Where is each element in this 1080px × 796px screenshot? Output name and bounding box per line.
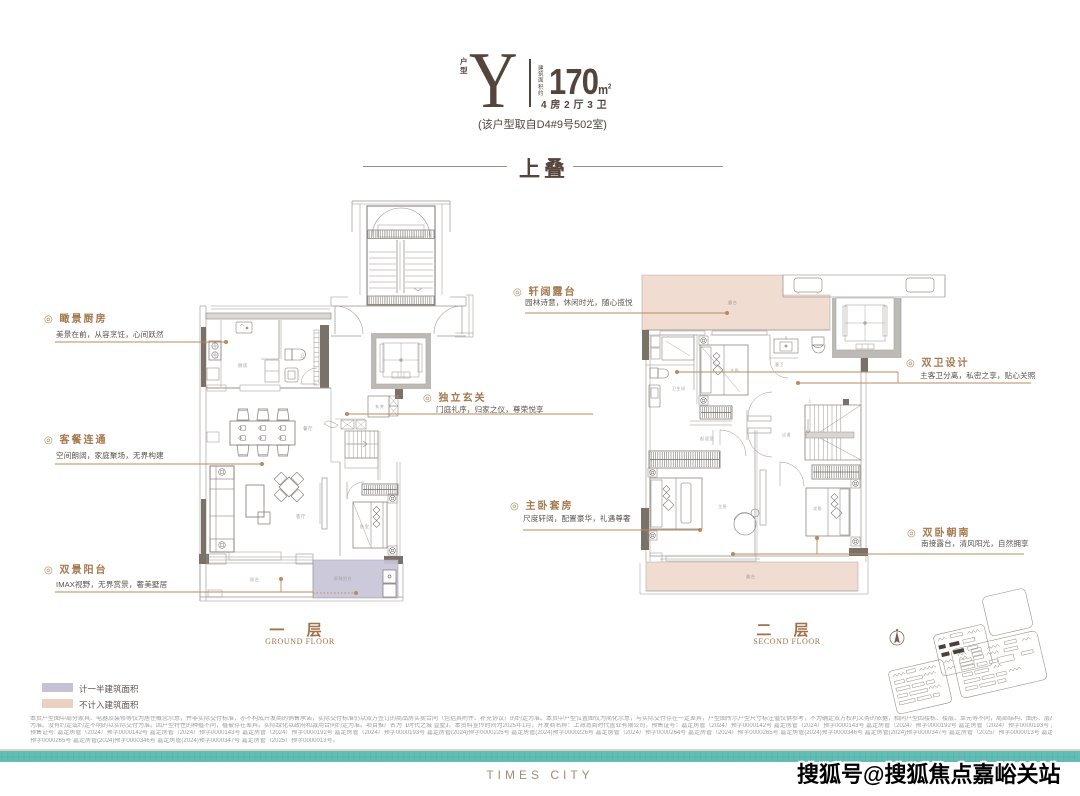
- svg-text:阳台: 阳台: [250, 576, 259, 583]
- svg-text:厨房: 厨房: [238, 362, 248, 369]
- svg-text:卫生间: 卫生间: [672, 385, 686, 391]
- svg-text:主卧: 主卧: [718, 503, 727, 510]
- svg-text:次卧: 次卧: [813, 505, 822, 512]
- svg-text:玄关: 玄关: [375, 403, 384, 410]
- svg-text:卫: 卫: [300, 353, 305, 358]
- svg-text:主卧: 主卧: [730, 367, 739, 374]
- svg-text:起居室: 起居室: [700, 435, 714, 442]
- svg-text:过道: 过道: [782, 431, 791, 437]
- svg-text:家政阳台: 家政阳台: [334, 575, 352, 581]
- svg-text:客厅: 客厅: [296, 513, 306, 520]
- svg-text:餐厅: 餐厅: [303, 425, 313, 432]
- svg-text:露台: 露台: [746, 573, 755, 580]
- svg-text:上: 上: [808, 398, 812, 403]
- svg-text:卧室: 卧室: [360, 523, 369, 530]
- svg-text:客卫: 客卫: [775, 361, 784, 367]
- svg-text:露台: 露台: [728, 299, 737, 306]
